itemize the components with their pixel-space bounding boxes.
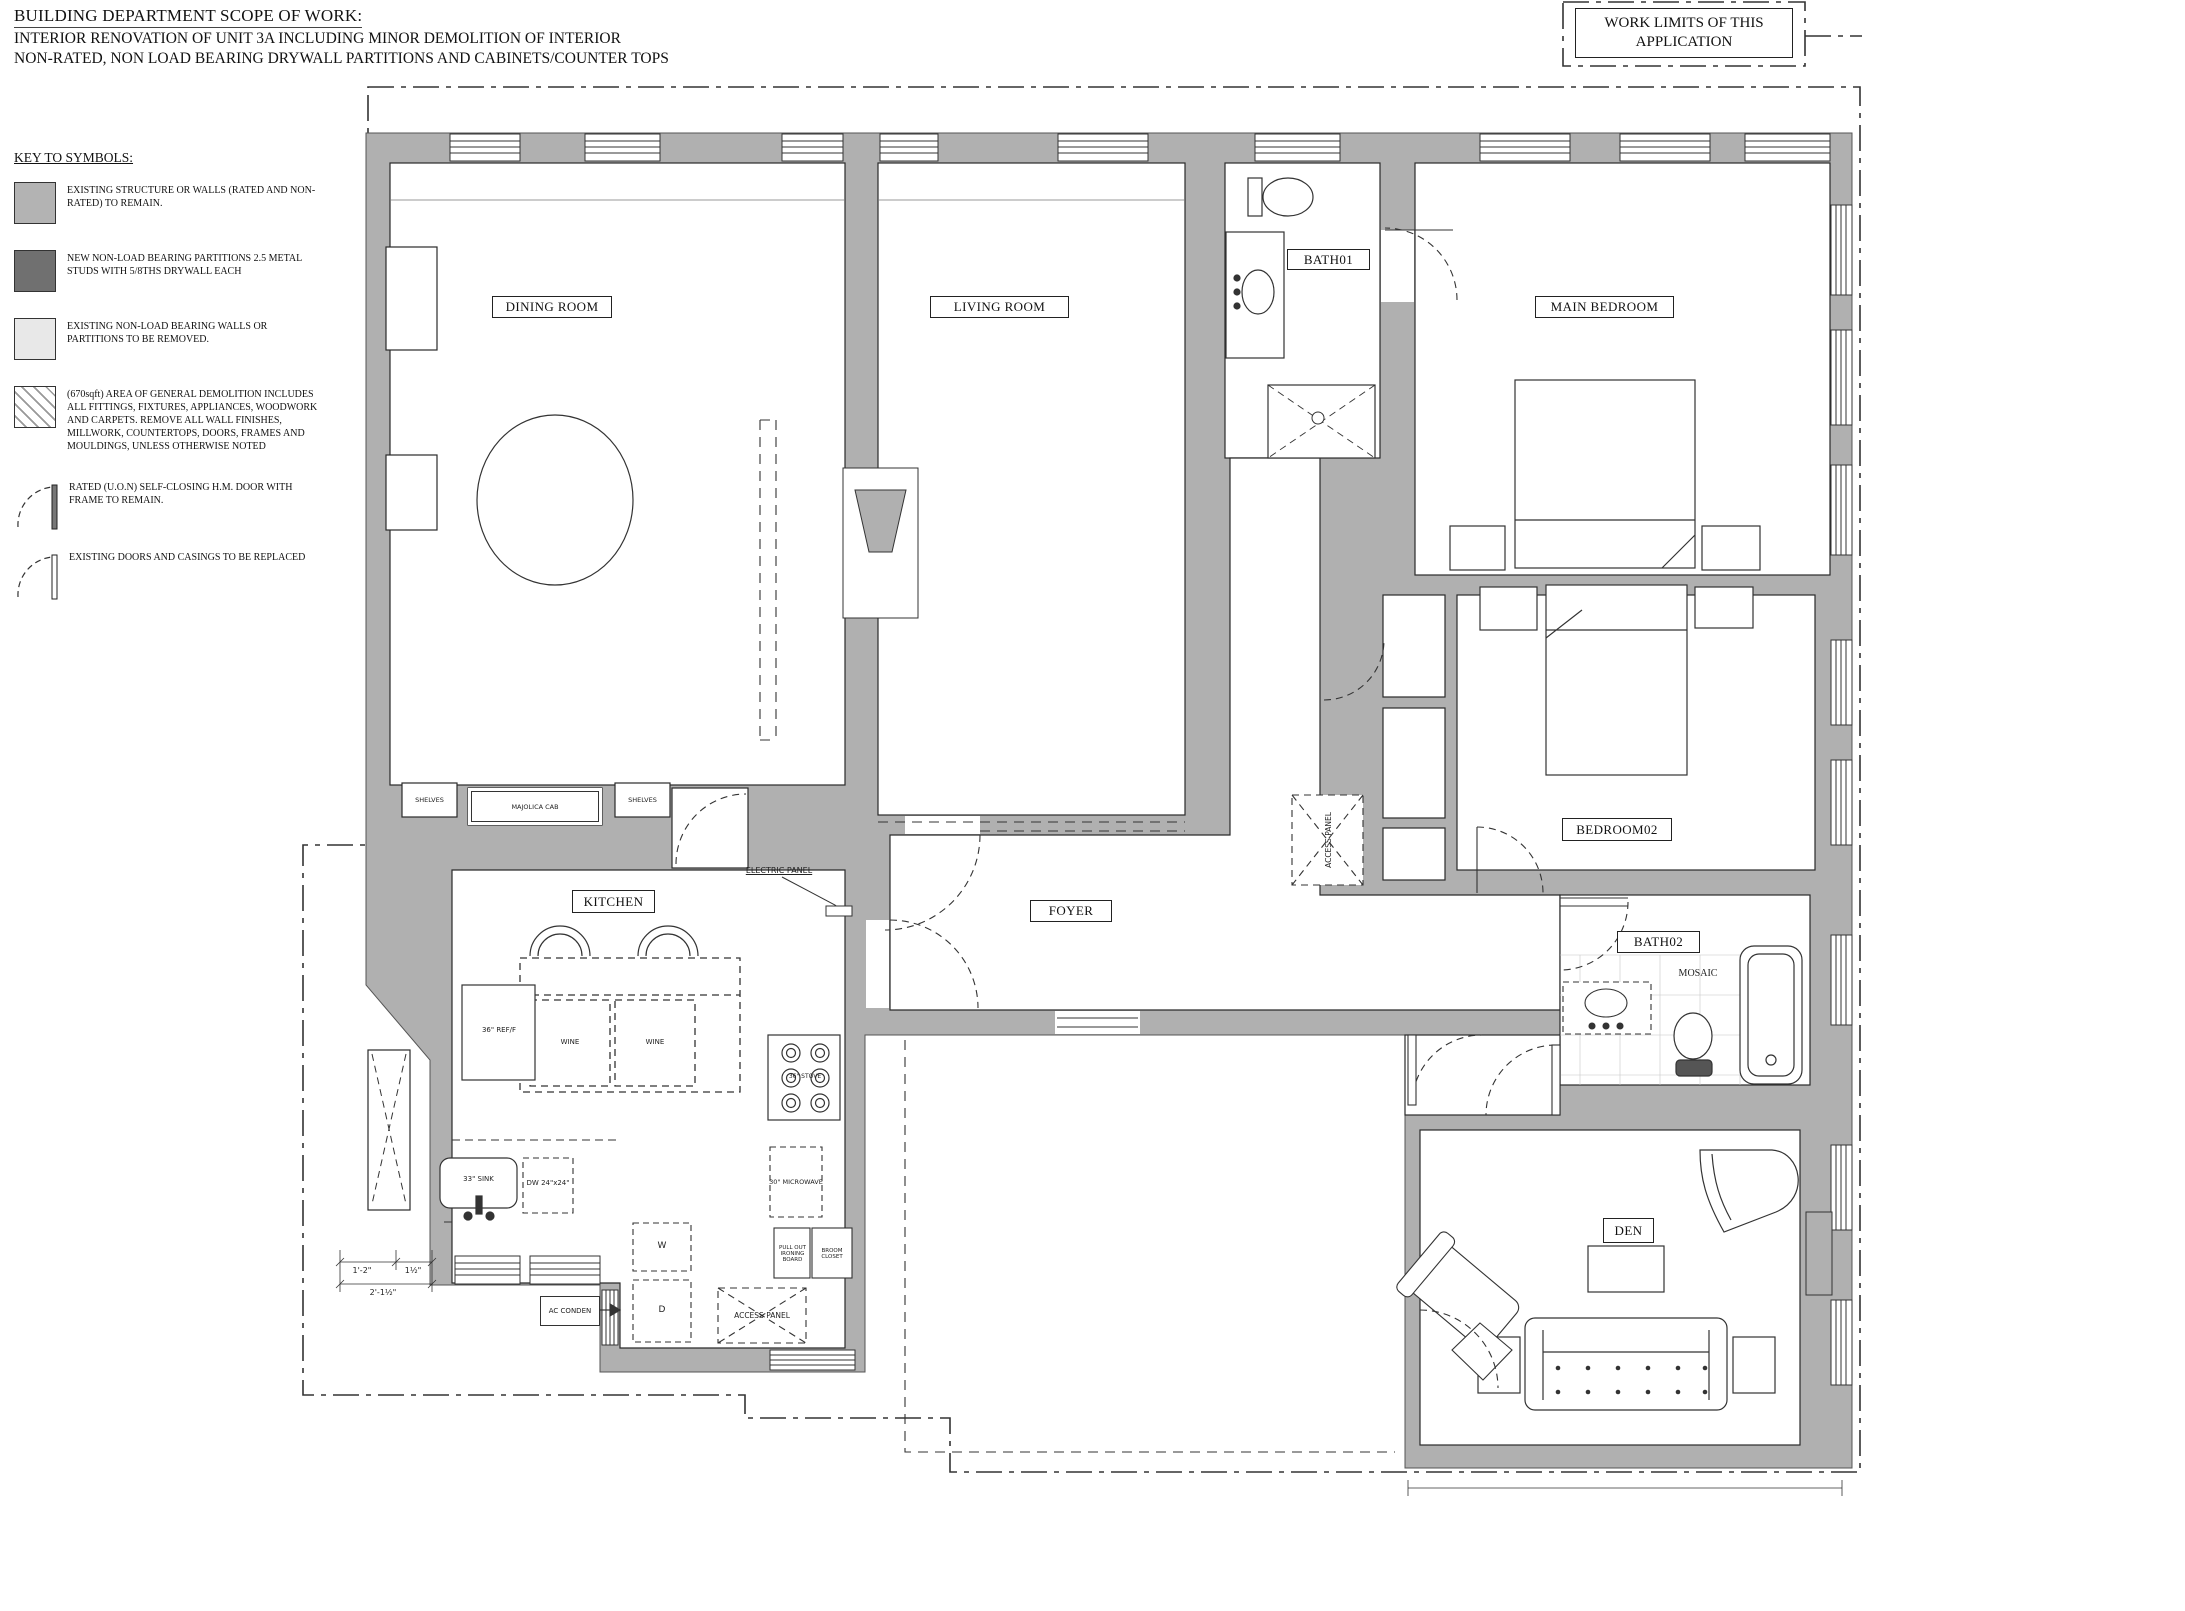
label-shelves-left: SHELVES bbox=[402, 783, 457, 817]
label-washer: W bbox=[647, 1238, 677, 1254]
label-mosaic: MOSAIC bbox=[1668, 966, 1728, 980]
label-sink: 33" SINK bbox=[440, 1172, 517, 1186]
label-ironing-board: PULL OUT IRONING BOARD bbox=[776, 1233, 809, 1275]
fireplace bbox=[843, 468, 918, 618]
room-label-living: LIVING ROOM bbox=[930, 296, 1069, 318]
legend-item-new-partition: NEW NON-LOAD BEARING PARTITIONS 2.5 META… bbox=[14, 250, 322, 292]
dimension-1: 1'-2" bbox=[338, 1264, 386, 1276]
label-majolica-cab: MAJOLICA CAB bbox=[468, 788, 602, 825]
legend-item-existing-door: EXISTING DOORS AND CASINGS TO BE REPLACE… bbox=[14, 549, 322, 593]
label-access-panel-kitchen: ACCESS PANEL bbox=[718, 1308, 806, 1322]
legend-item-removed: EXISTING NON-LOAD BEARING WALLS OR PARTI… bbox=[14, 318, 322, 360]
label-stove: 36" STOVE bbox=[777, 1060, 833, 1092]
rated-door-symbol-icon bbox=[14, 479, 58, 523]
work-limits-label: WORK LIMITS OF THIS APPLICATION bbox=[1575, 8, 1793, 58]
legend-item-text: EXISTING NON-LOAD BEARING WALLS OR PARTI… bbox=[67, 318, 322, 346]
legend-item-text: EXISTING STRUCTURE OR WALLS (RATED AND N… bbox=[67, 182, 322, 210]
bath02-sink bbox=[1585, 989, 1627, 1029]
bath02-toilet bbox=[1674, 1013, 1712, 1076]
dimension-2: 1½" bbox=[396, 1264, 430, 1276]
legend-item-demolition: (670sqft) AREA OF GENERAL DEMOLITION INC… bbox=[14, 386, 322, 453]
room-label-dining: DINING ROOM bbox=[492, 296, 612, 318]
demolition-hatch-swatch-icon bbox=[14, 386, 56, 428]
existing-door-symbol-icon bbox=[14, 549, 58, 593]
legend-item-text: EXISTING DOORS AND CASINGS TO BE REPLACE… bbox=[69, 549, 305, 564]
shower-drain bbox=[1312, 412, 1324, 424]
windows-top bbox=[450, 134, 1830, 161]
room-label-den: DEN bbox=[1603, 1218, 1654, 1243]
sheet-header: BUILDING DEPARTMENT SCOPE OF WORK: INTER… bbox=[14, 6, 669, 68]
room-label-main-bedroom: MAIN BEDROOM bbox=[1535, 296, 1674, 318]
room-label-bedroom02: BEDROOM02 bbox=[1562, 818, 1672, 841]
label-electric-panel: ELECTRIC PANEL bbox=[723, 864, 835, 876]
label-ac-condenser: AC CONDEN bbox=[540, 1296, 600, 1326]
legend-item-text: RATED (U.O.N) SELF-CLOSING H.M. DOOR WIT… bbox=[69, 479, 322, 507]
den-coffee-table bbox=[1588, 1246, 1664, 1292]
label-wine-left: WINE bbox=[530, 1032, 610, 1052]
work-limits-callout: WORK LIMITS OF THIS APPLICATION bbox=[1563, 2, 1805, 66]
label-access-panel-shaft: ACCESS PANEL bbox=[1320, 800, 1336, 880]
sheet-subtitle-2: NON-RATED, NON LOAD BEARING DRYWALL PART… bbox=[14, 50, 669, 68]
label-microwave: 30" MICROWAVE bbox=[768, 1166, 824, 1198]
legend-item-existing: EXISTING STRUCTURE OR WALLS (RATED AND N… bbox=[14, 182, 322, 224]
new-partition-swatch-icon bbox=[14, 250, 56, 292]
sheet-subtitle-1: INTERIOR RENOVATION OF UNIT 3A INCLUDING… bbox=[14, 30, 669, 48]
legend-item-rated-door: RATED (U.O.N) SELF-CLOSING H.M. DOOR WIT… bbox=[14, 479, 322, 523]
legend-item-text: (670sqft) AREA OF GENERAL DEMOLITION INC… bbox=[67, 386, 322, 453]
key-to-symbols: KEY TO SYMBOLS: EXISTING STRUCTURE OR WA… bbox=[14, 150, 322, 619]
room-label-foyer: FOYER bbox=[1030, 900, 1112, 922]
floor-plan-drawing bbox=[0, 0, 2185, 1611]
label-refrigerator: 36" REF/F bbox=[462, 1010, 536, 1050]
label-dryer: D bbox=[647, 1302, 677, 1318]
label-shelves-right: SHELVES bbox=[615, 783, 670, 817]
label-dishwasher: DW 24"x24" bbox=[523, 1165, 573, 1201]
room-label-bath02: BATH02 bbox=[1617, 931, 1700, 953]
kitchen-island bbox=[520, 958, 740, 1092]
legend-item-text: NEW NON-LOAD BEARING PARTITIONS 2.5 META… bbox=[67, 250, 322, 278]
dimension-3: 2'-1½" bbox=[352, 1286, 414, 1298]
label-wine-right: WINE bbox=[615, 1032, 695, 1052]
removed-partition-swatch-icon bbox=[14, 318, 56, 360]
sheet-title: BUILDING DEPARTMENT SCOPE OF WORK: bbox=[14, 6, 362, 28]
room-label-kitchen: KITCHEN bbox=[572, 890, 655, 913]
bathtub bbox=[1740, 946, 1802, 1084]
legend-heading: KEY TO SYMBOLS: bbox=[14, 150, 322, 166]
room-label-bath01: BATH01 bbox=[1287, 249, 1370, 270]
existing-structure-swatch-icon bbox=[14, 182, 56, 224]
floor-plan-sheet: BUILDING DEPARTMENT SCOPE OF WORK: INTER… bbox=[0, 0, 2185, 1611]
label-broom-closet: BROOM CLOSET bbox=[813, 1233, 851, 1275]
dining-table bbox=[477, 415, 633, 585]
